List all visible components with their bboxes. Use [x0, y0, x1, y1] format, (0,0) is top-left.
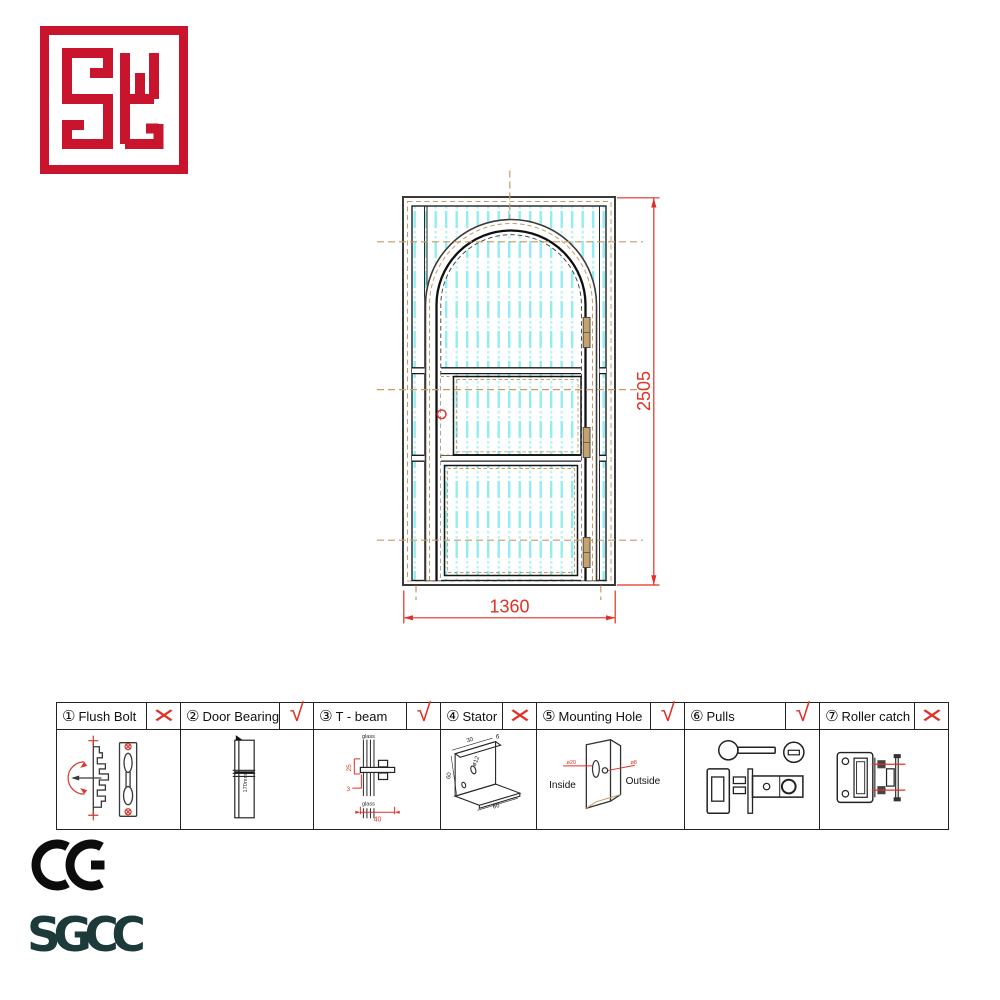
part-number: ⑥	[690, 707, 703, 725]
part-number: ①	[62, 707, 75, 725]
part-mark-box: ✕	[914, 703, 948, 729]
part-header: ⑦ Roller catch ✕	[820, 703, 948, 730]
bearing-length-label: 170mm	[243, 773, 249, 792]
check-icon: √	[289, 701, 303, 726]
part-header: ③ T - beam √	[314, 703, 440, 730]
dim-30: 30	[466, 737, 475, 745]
cross-icon: ✕	[151, 706, 176, 726]
sgcc-logo: SGCC	[27, 908, 138, 963]
dim-60-bottom: 60	[492, 803, 501, 811]
part-drawing-pulls	[685, 730, 819, 829]
part-mark-box: √	[785, 703, 819, 729]
part-mark-box: ✕	[146, 703, 180, 729]
dim-3: 3	[347, 786, 351, 793]
check-icon: √	[795, 701, 809, 726]
part-mark-box: √	[279, 703, 313, 729]
dim-6: 6	[496, 735, 500, 741]
part-label: Pulls	[707, 709, 786, 724]
part-mark-box: ✕	[502, 703, 536, 729]
part-drawing-flush-bolt	[57, 730, 180, 829]
check-icon: √	[660, 701, 674, 726]
part-header: ④ Stator ✕	[441, 703, 536, 730]
glass-label-top: glass	[362, 734, 375, 740]
part-header: ⑥ Pulls √	[685, 703, 819, 730]
check-icon: √	[416, 701, 430, 726]
part-label: Stator	[463, 709, 503, 724]
part-mark-box: √	[650, 703, 684, 729]
inside-label: Inside	[549, 780, 576, 791]
ce-mark	[31, 839, 109, 891]
dim-12: ø12	[472, 755, 482, 767]
part-drawing-stator: 30 6 ø12 60 60	[441, 730, 536, 829]
part-label: T - beam	[336, 709, 407, 724]
cross-icon: ✕	[919, 706, 944, 726]
outside-label: Outside	[626, 776, 661, 787]
part-number: ③	[319, 707, 332, 725]
parts-table: ① Flush Bolt ✕	[56, 702, 949, 830]
part-label: Door Bearing	[202, 709, 279, 724]
part-drawing-door-bearing: 170mm	[181, 730, 313, 829]
dim-20: ø20	[567, 760, 577, 766]
product-drawing-sheet: 2505 1360 ① Flush Bolt ✕	[0, 0, 1000, 1000]
dim-40: 40	[374, 816, 382, 823]
part-header: ⑤ Mounting Hole √	[537, 703, 684, 730]
dim-60-left: 60	[446, 771, 453, 779]
dim-height-label: 2505	[634, 371, 654, 411]
part-cell-roller-catch: ⑦ Roller catch ✕	[820, 703, 948, 829]
part-number: ⑤	[542, 707, 555, 725]
part-cell-mounting-hole: ⑤ Mounting Hole √	[537, 703, 685, 829]
part-number: ⑦	[825, 707, 838, 725]
part-label: Mounting Hole	[559, 709, 651, 724]
part-cell-pulls: ⑥ Pulls √	[685, 703, 820, 829]
part-number: ④	[446, 707, 459, 725]
part-drawing-mounting-hole: ø20 ø8 Inside Outside	[537, 730, 684, 829]
part-label: Roller catch	[842, 709, 915, 724]
part-cell-door-bearing: ② Door Bearing √ 170mm	[181, 703, 314, 829]
dim-8: ø8	[631, 760, 637, 766]
door-drawing: 2505 1360	[370, 160, 680, 640]
sy-logo	[40, 26, 188, 174]
part-drawing-t-beam: glass glass 25 3 40	[314, 730, 440, 829]
part-number: ②	[186, 707, 199, 725]
part-cell-stator: ④ Stator ✕	[441, 703, 537, 829]
part-cell-t-beam: ③ T - beam √ glass glass	[314, 703, 441, 829]
part-drawing-roller-catch	[820, 730, 948, 829]
part-mark-box: √	[406, 703, 440, 729]
part-header: ② Door Bearing √	[181, 703, 313, 730]
glass-label-bottom: glass	[362, 802, 375, 808]
cross-icon: ✕	[507, 706, 532, 726]
part-cell-flush-bolt: ① Flush Bolt ✕	[57, 703, 181, 829]
dim-width-label: 1360	[489, 597, 529, 617]
part-label: Flush Bolt	[78, 709, 146, 724]
part-header: ① Flush Bolt ✕	[57, 703, 180, 730]
dim-25: 25	[346, 764, 353, 772]
